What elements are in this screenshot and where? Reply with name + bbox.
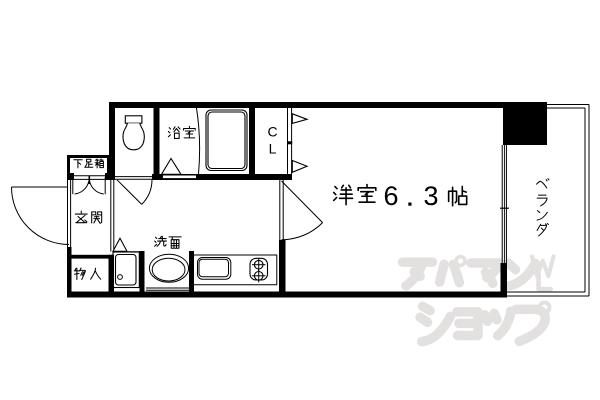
svg-text:3: 3	[423, 181, 438, 211]
svg-text:C: C	[267, 124, 277, 140]
svg-text:L: L	[269, 141, 277, 157]
svg-text:6: 6	[383, 181, 398, 211]
